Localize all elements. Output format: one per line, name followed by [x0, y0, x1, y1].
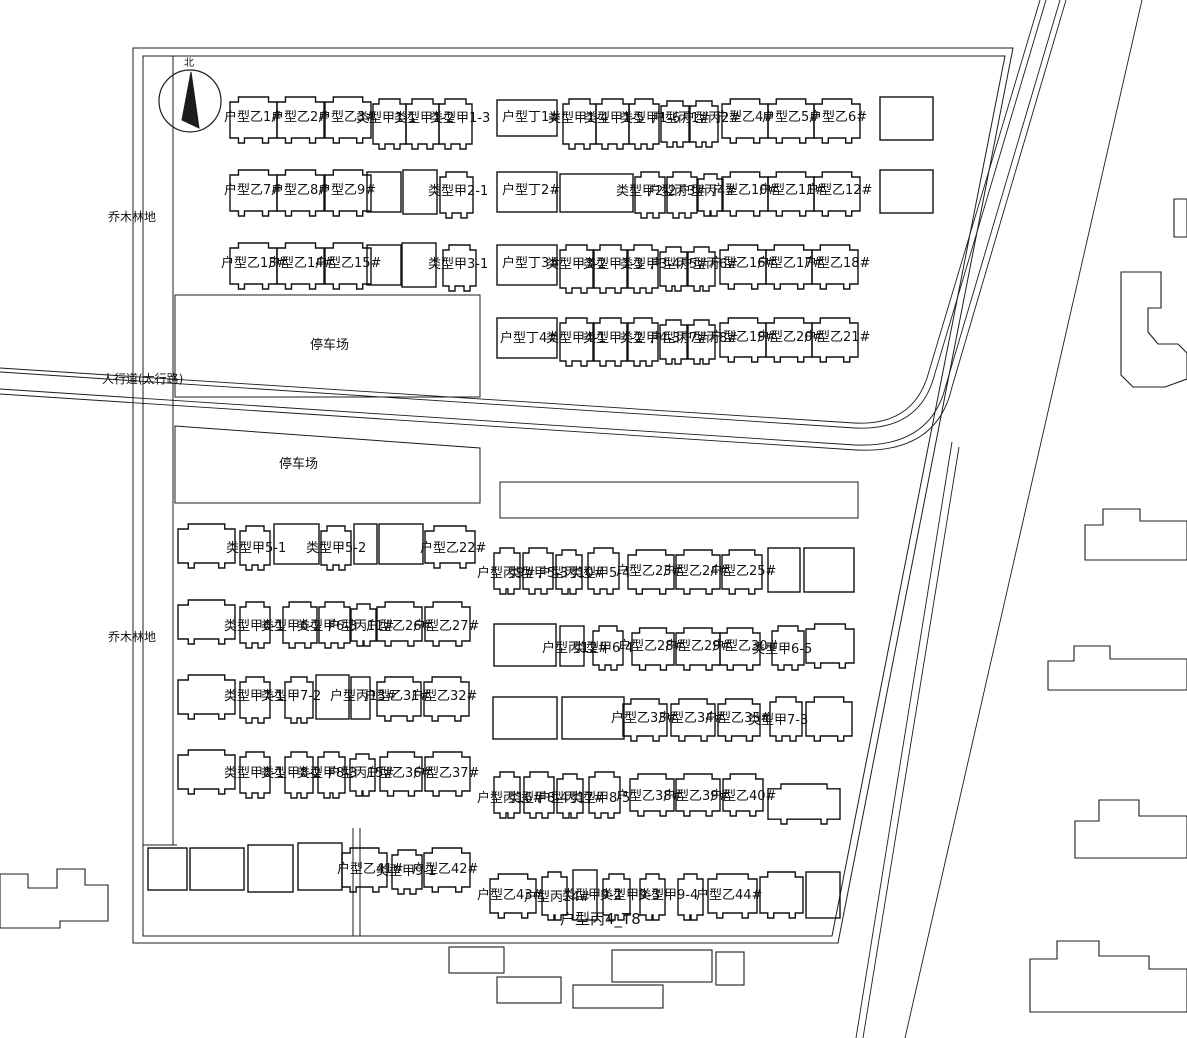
site-label: 乔木林地	[108, 630, 156, 644]
building-label: 类型甲6-5	[752, 642, 812, 657]
building-footprint	[806, 697, 852, 741]
site-plan-canvas: 户型乙1#户型乙2#户型乙3#类型甲1-1类型甲1-2类型甲1-3户型丁1#类型…	[0, 0, 1187, 1038]
building-label: 户型丁2#	[502, 182, 560, 198]
building-label: 户型乙9#	[318, 182, 376, 198]
site-label: 户型丙4_T8	[560, 910, 641, 929]
site-plan-drawing: 户型乙1#户型乙2#户型乙3#类型甲1-1类型甲1-2类型甲1-3户型丁1#类型…	[0, 0, 1187, 1038]
building-label: 类型甲5-2	[306, 541, 366, 556]
outside-building	[1030, 941, 1187, 1012]
compass-needle	[182, 72, 199, 128]
neighbor-building	[573, 985, 663, 1008]
building-footprint	[760, 872, 803, 918]
outside-building	[1121, 272, 1187, 387]
building-label: 户型乙42#	[412, 861, 478, 877]
building-label: 户型乙15#	[315, 255, 381, 271]
site-label: 停车场	[279, 456, 318, 472]
outside-building	[0, 869, 108, 928]
building-label: 类型甲2-1	[428, 184, 488, 199]
site-label: 人行道(太行路)	[102, 371, 183, 386]
neighbor-building	[449, 947, 504, 973]
building-footprint	[190, 848, 244, 890]
building-label: 户型乙40#	[710, 788, 776, 804]
road-line	[905, 0, 1142, 1038]
building-footprint	[880, 170, 933, 213]
building-label: 户型乙6#	[809, 109, 867, 125]
road-line	[0, 0, 1046, 428]
building-label: 类型甲7-2	[261, 689, 321, 704]
building-footprint	[806, 624, 854, 668]
building-label: 户型乙27#	[413, 618, 479, 634]
building-label: 类型甲5-1	[226, 541, 286, 556]
building-label: 户型乙25#	[710, 563, 776, 579]
building-label: 户型乙32#	[411, 688, 477, 704]
building-label: 户型乙21#	[804, 329, 870, 345]
building-label: 类型甲3-1	[428, 257, 488, 272]
building-footprint	[768, 784, 840, 824]
building-footprint	[880, 97, 933, 140]
outside-building	[1085, 509, 1187, 560]
outside-building	[1048, 646, 1187, 690]
building-footprint	[493, 697, 557, 739]
building-footprint	[298, 843, 342, 890]
site-label: 乔木林地	[108, 210, 156, 224]
neighbor-building	[716, 952, 744, 985]
building-footprint	[804, 548, 854, 592]
building-label: 户型乙12#	[806, 182, 872, 198]
building-label: 户型乙22#	[420, 540, 486, 556]
site-label: 停车场	[310, 337, 349, 353]
building-footprint	[148, 848, 187, 890]
parking-area	[500, 482, 858, 518]
building-footprint	[248, 845, 293, 892]
parking-area	[175, 426, 480, 503]
building-footprint	[379, 524, 423, 564]
neighbor-building	[497, 977, 561, 1003]
outside-building	[1075, 800, 1187, 858]
building-label: 户型乙37#	[413, 765, 479, 781]
building-label: 类型甲9-4	[638, 888, 698, 903]
building-label: 类型甲1-3	[430, 111, 490, 126]
compass-north-mark: 北	[184, 57, 194, 69]
building-label: 类型甲7-3	[748, 713, 808, 728]
building-label: 户型乙18#	[804, 255, 870, 271]
neighbor-building	[612, 950, 712, 982]
building-footprint	[806, 872, 840, 918]
building-label: 户型乙44#	[696, 887, 762, 903]
outside-building	[1174, 199, 1187, 237]
